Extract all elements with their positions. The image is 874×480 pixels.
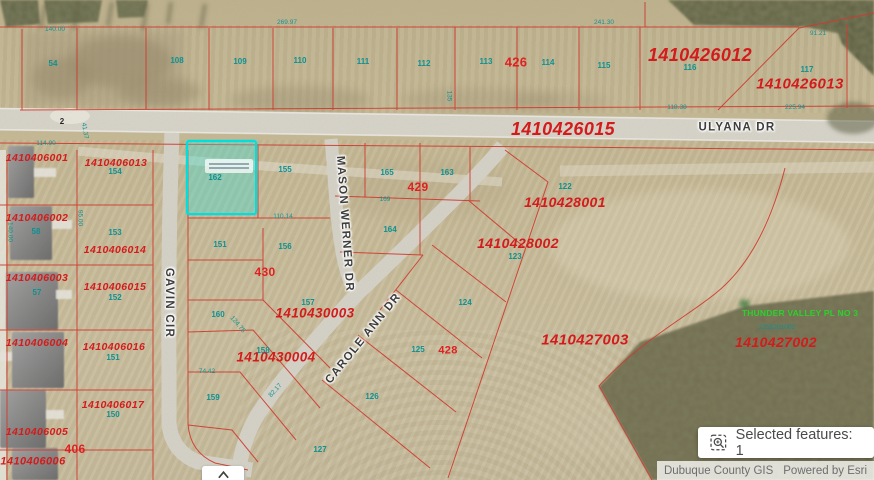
photo-grain xyxy=(0,0,874,480)
selection-tooltip xyxy=(205,159,253,173)
attribution-source: Dubuque County GIS xyxy=(664,465,773,477)
selected-parcel-highlight[interactable] xyxy=(186,140,257,215)
map-graphics xyxy=(0,0,874,480)
expand-panel-button[interactable] xyxy=(202,466,244,480)
selection-zoom-icon xyxy=(710,434,727,451)
attribution-powered: Powered by Esri xyxy=(783,465,867,477)
selected-features-badge[interactable]: Selected features: 1 xyxy=(698,427,874,458)
map-attribution: Dubuque County GIS Powered by Esri xyxy=(657,461,874,480)
gis-map-canvas[interactable]: 1410406001141040601314104060021410406014… xyxy=(0,0,874,480)
chevron-up-icon xyxy=(217,470,230,479)
selected-features-label: Selected features: 1 xyxy=(736,427,862,459)
